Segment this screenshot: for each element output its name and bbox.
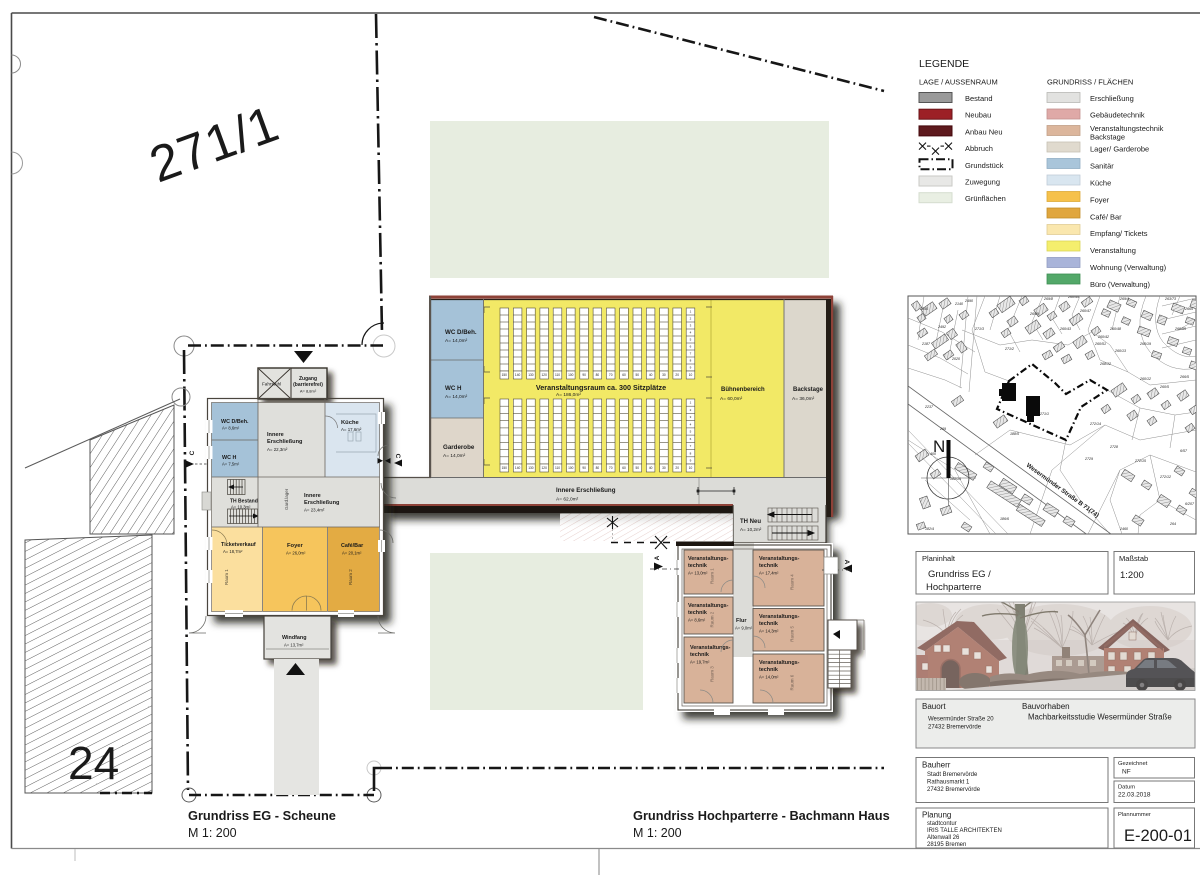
svg-text:10: 10 (689, 466, 693, 470)
svg-text:Raum 5: Raum 5 (790, 625, 795, 641)
svg-text:Flur: Flur (736, 618, 747, 624)
svg-text:A= 14,3m²: A= 14,3m² (759, 629, 779, 634)
svg-text:GRUNDRISS / FLÄCHEN: GRUNDRISS / FLÄCHEN (1047, 78, 1133, 87)
svg-text:Abbruch: Abbruch (965, 144, 993, 153)
svg-text:Planinhalt: Planinhalt (922, 554, 956, 563)
svg-text:260/19: 260/19 (1139, 342, 1151, 346)
svg-text:A= 13,0m²: A= 13,0m² (688, 571, 708, 576)
svg-text:80: 80 (596, 466, 600, 470)
svg-text:A= 8,6m²: A= 8,6m² (688, 618, 706, 623)
svg-text:Planung: Planung (922, 811, 951, 820)
svg-text:Innere: Innere (267, 432, 284, 438)
svg-text:70: 70 (609, 466, 613, 470)
svg-text:60: 60 (622, 373, 626, 377)
svg-text:A= 36,0m²: A= 36,0m² (792, 396, 815, 402)
svg-text:stadtcontur: stadtcontur (927, 821, 957, 827)
svg-text:Café/Bar: Café/Bar (341, 543, 364, 549)
svg-text:70: 70 (609, 373, 613, 377)
svg-text:260/51: 260/51 (1094, 342, 1106, 346)
svg-text:27432 Bremervörde: 27432 Bremervörde (928, 725, 982, 731)
svg-text:28195 Bremen: 28195 Bremen (927, 842, 966, 848)
svg-text:20: 20 (675, 466, 679, 470)
svg-text:A= 186,0m²: A= 186,0m² (556, 392, 581, 398)
svg-text:60: 60 (622, 466, 626, 470)
svg-text:110: 110 (555, 466, 560, 470)
svg-text:2492: 2492 (937, 325, 946, 329)
svg-text:A= 14,0m²: A= 14,0m² (445, 394, 468, 400)
svg-text:Raum 6: Raum 6 (790, 674, 795, 690)
svg-text:Neubau: Neubau (965, 111, 991, 120)
svg-text:LAGE / AUSSENRAUM: LAGE / AUSSENRAUM (919, 78, 998, 87)
svg-text:technik: technik (759, 621, 778, 627)
svg-text:M 1: 200: M 1: 200 (188, 826, 237, 840)
svg-text:Bühnenbereich: Bühnenbereich (721, 387, 765, 393)
svg-text:Foyer: Foyer (1090, 195, 1110, 204)
svg-text:C: C (394, 454, 401, 459)
svg-text:Foyer: Foyer (287, 543, 304, 549)
svg-text:260/55: 260/55 (1174, 327, 1186, 331)
svg-text:A= 20,1m²: A= 20,1m² (342, 551, 362, 556)
svg-text:technik: technik (688, 610, 707, 616)
svg-text:A= 8,8m²: A= 8,8m² (300, 389, 317, 394)
svg-text:260/12: 260/12 (1139, 377, 1151, 381)
svg-text:technik: technik (759, 563, 778, 569)
svg-text:A= 9,0m²: A= 9,0m² (735, 626, 753, 631)
svg-text:110: 110 (555, 373, 560, 377)
svg-text:2729: 2729 (1084, 457, 1093, 461)
svg-text:A: A (843, 560, 850, 565)
svg-text:Küche: Küche (341, 420, 359, 426)
svg-text:90: 90 (582, 373, 586, 377)
svg-text:260/47: 260/47 (1079, 309, 1092, 313)
svg-text:A= 17,6m²: A= 17,6m² (341, 427, 362, 432)
svg-text:Raum 3: Raum 3 (710, 666, 715, 682)
svg-text:Erschließung: Erschließung (267, 439, 303, 445)
svg-text:Backstage: Backstage (1090, 133, 1125, 142)
svg-text:Machbarkeitsstudie Wesermünder: Machbarkeitsstudie Wesermünder Straße (1028, 713, 1172, 722)
svg-text:Anbau Neu: Anbau Neu (965, 127, 1003, 136)
svg-text:10: 10 (689, 373, 693, 377)
svg-text:260/42: 260/42 (1097, 335, 1109, 339)
svg-text:50: 50 (636, 373, 640, 377)
svg-text:Gard.lager: Gard.lager (284, 488, 289, 510)
svg-text:(barrierefrei): (barrierefrei) (293, 382, 323, 388)
svg-text:6/57: 6/57 (1180, 449, 1188, 453)
svg-text:Veranstaltung: Veranstaltung (1090, 246, 1136, 255)
svg-text:Lager/ Garderobe: Lager/ Garderobe (1090, 145, 1149, 154)
svg-text:A= 13,7m²: A= 13,7m² (284, 643, 304, 648)
svg-text:50: 50 (636, 466, 640, 470)
svg-text:264: 264 (1169, 522, 1176, 526)
svg-text:1:200: 1:200 (1120, 570, 1144, 581)
svg-text:2460: 2460 (1119, 527, 1128, 531)
svg-text:140: 140 (515, 373, 521, 377)
svg-text:A= 14,0m²: A= 14,0m² (445, 338, 468, 344)
svg-text:Raum 1: Raum 1 (710, 568, 715, 584)
svg-text:Veranstaltungsraum ca. 300 Sit: Veranstaltungsraum ca. 300 Sitzplätze (536, 383, 666, 392)
svg-text:Empfang/ Tickets: Empfang/ Tickets (1090, 229, 1148, 238)
svg-text:Innere Erschließung: Innere Erschließung (556, 487, 616, 494)
svg-text:A: A (654, 555, 661, 560)
svg-text:Backstage: Backstage (793, 387, 824, 393)
svg-text:Veranstaltungs-: Veranstaltungs- (759, 614, 800, 620)
svg-text:40: 40 (649, 373, 653, 377)
svg-text:269/4: 269/4 (1119, 297, 1129, 301)
svg-text:A= 18,7m²: A= 18,7m² (223, 549, 243, 554)
svg-text:100: 100 (568, 373, 574, 377)
svg-text:A= 8,6m²: A= 8,6m² (222, 426, 240, 431)
svg-text:20: 20 (675, 373, 679, 377)
svg-text:120: 120 (542, 466, 548, 470)
svg-text:90: 90 (582, 466, 586, 470)
svg-text:130: 130 (528, 466, 534, 470)
svg-text:Veranstaltungs-: Veranstaltungs- (688, 556, 729, 562)
svg-text:Bauvorhaben: Bauvorhaben (1022, 702, 1070, 711)
svg-text:Grundriss Hochparterre - Bachm: Grundriss Hochparterre - Bachmann Haus (633, 808, 890, 823)
svg-text:Zuwegung: Zuwegung (965, 178, 1000, 187)
svg-text:6/207: 6/207 (1185, 502, 1195, 506)
svg-text:Stadt Bremervörde: Stadt Bremervörde (927, 772, 978, 778)
svg-text:Raum 1: Raum 1 (224, 569, 229, 585)
svg-text:Café/ Bar: Café/ Bar (1090, 212, 1122, 221)
svg-text:A= 7,5m²: A= 7,5m² (222, 462, 240, 467)
svg-text:A= 23,4m²: A= 23,4m² (304, 508, 325, 513)
svg-text:Gezeichnet: Gezeichnet (1118, 761, 1148, 767)
svg-text:Veranstaltungs-: Veranstaltungs- (759, 556, 800, 562)
svg-text:130: 130 (528, 373, 534, 377)
svg-text:Bauherr: Bauherr (922, 761, 951, 770)
svg-text:Sanitär: Sanitär (1090, 162, 1114, 171)
svg-text:27432 Bremervörde: 27432 Bremervörde (927, 787, 981, 793)
svg-text:Raum 2: Raum 2 (710, 611, 715, 627)
svg-text:2020: 2020 (951, 357, 960, 361)
svg-text:TH Neu: TH Neu (740, 519, 761, 525)
svg-text:A= 14,0m²: A= 14,0m² (759, 675, 779, 680)
svg-text:Altenwall 26: Altenwall 26 (927, 835, 960, 841)
svg-text:40: 40 (649, 466, 653, 470)
svg-text:2490: 2490 (964, 299, 973, 303)
svg-text:188/5: 188/5 (1010, 432, 1019, 436)
svg-text:2140: 2140 (954, 302, 963, 306)
svg-text:A= 22,3m²: A= 22,3m² (267, 447, 288, 452)
svg-text:Datum: Datum (1118, 785, 1135, 791)
svg-text:268/12: 268/12 (1099, 362, 1111, 366)
svg-text:A= 17,4m²: A= 17,4m² (759, 571, 779, 576)
svg-text:LEGENDE: LEGENDE (919, 58, 969, 70)
svg-text:150: 150 (502, 466, 508, 470)
svg-text:150: 150 (502, 373, 508, 377)
svg-text:Fahrstuhl: Fahrstuhl (262, 382, 281, 387)
svg-text:269/9: 269/9 (1029, 312, 1039, 316)
svg-text:technik: technik (688, 563, 707, 569)
svg-text:technik: technik (759, 667, 778, 673)
svg-text:272/15: 272/15 (1134, 459, 1146, 463)
svg-text:Wesermünder Straße 20: Wesermünder Straße 20 (928, 717, 994, 723)
svg-text:C: C (189, 450, 196, 455)
svg-text:WC H: WC H (222, 455, 236, 461)
svg-text:30: 30 (662, 466, 666, 470)
svg-text:WC D/Beh.: WC D/Beh. (221, 419, 249, 425)
svg-text:Grundriss EG - Scheune: Grundriss EG - Scheune (188, 808, 336, 823)
svg-text:A= 14,0m²: A= 14,0m² (443, 453, 466, 459)
svg-text:182/4: 182/4 (925, 527, 934, 531)
svg-text:Erschließung: Erschließung (1090, 94, 1134, 103)
svg-text:100: 100 (568, 466, 574, 470)
svg-text:186/6: 186/6 (1000, 517, 1009, 521)
svg-text:E-200-01: E-200-01 (1124, 827, 1192, 845)
svg-text:24: 24 (68, 737, 119, 789)
svg-text:Bauort: Bauort (922, 702, 946, 711)
svg-text:182/14: 182/14 (950, 477, 961, 481)
svg-text:Wohnung (Verwaltung): Wohnung (Verwaltung) (1090, 263, 1167, 272)
svg-text:Raum 2: Raum 2 (348, 569, 353, 585)
svg-text:Maßstab: Maßstab (1119, 554, 1148, 563)
svg-text:80: 80 (596, 373, 600, 377)
svg-text:Grünflächen: Grünflächen (965, 194, 1006, 203)
svg-text:Raum 4: Raum 4 (790, 574, 795, 590)
svg-text:A= 10,2m²: A= 10,2m² (740, 527, 762, 532)
svg-text:22.03.2018: 22.03.2018 (1118, 792, 1151, 799)
svg-text:Rathausmarkt 1: Rathausmarkt 1 (927, 780, 970, 786)
svg-text:2728: 2728 (1109, 445, 1118, 449)
svg-text:N: N (933, 437, 945, 456)
svg-text:2237: 2237 (924, 405, 934, 409)
svg-text:Gebäudetechnik: Gebäudetechnik (1090, 111, 1145, 120)
svg-text:Plannummer: Plannummer (1118, 812, 1151, 818)
svg-text:271/1: 271/1 (1039, 412, 1049, 416)
svg-text:260/48: 260/48 (1109, 327, 1121, 331)
svg-text:Bestand: Bestand (965, 94, 993, 103)
svg-text:IRIS TALLE ARCHITEKTEN: IRIS TALLE ARCHITEKTEN (927, 828, 1002, 834)
svg-text:272/14: 272/14 (1089, 422, 1101, 426)
svg-text:M 1: 200: M 1: 200 (633, 826, 682, 840)
svg-text:A= 60,0m²: A= 60,0m² (720, 396, 743, 402)
svg-text:269/8: 269/8 (1043, 297, 1053, 301)
svg-text:Veranstaltungs-: Veranstaltungs- (688, 603, 729, 609)
svg-text:30: 30 (662, 373, 666, 377)
svg-text:140: 140 (515, 466, 521, 470)
svg-text:266/5: 266/5 (1179, 375, 1189, 379)
svg-text:260/13: 260/13 (1114, 349, 1126, 353)
svg-text:technik: technik (690, 652, 709, 658)
svg-text:260/5: 260/5 (1159, 385, 1169, 389)
svg-text:Büro (Verwaltung): Büro (Verwaltung) (1090, 280, 1151, 289)
svg-text:Veranstaltungs-: Veranstaltungs- (759, 660, 800, 666)
svg-text:2145: 2145 (919, 307, 928, 311)
svg-text:A= 19,7m²: A= 19,7m² (690, 660, 710, 665)
svg-text:Erschließung: Erschließung (304, 500, 340, 506)
svg-text:Grundstück: Grundstück (965, 161, 1004, 170)
svg-text:NF: NF (1122, 769, 1131, 776)
svg-text:WC H: WC H (445, 385, 462, 392)
svg-text:A= 26,0m²: A= 26,0m² (286, 551, 306, 556)
svg-text:Hochparterre: Hochparterre (926, 582, 981, 593)
svg-text:WC D/Beh.: WC D/Beh. (445, 329, 477, 336)
svg-text:Veranstaltungs-: Veranstaltungs- (690, 645, 731, 651)
svg-text:A= 62,0m²: A= 62,0m² (556, 497, 579, 503)
svg-text:260/43: 260/43 (1059, 327, 1071, 331)
svg-text:271/2: 271/2 (1004, 347, 1014, 351)
svg-text:2187: 2187 (921, 342, 931, 346)
svg-text:Windfang: Windfang (282, 635, 307, 641)
svg-text:Küche: Küche (1090, 179, 1111, 188)
svg-text:Grundriss EG /: Grundriss EG / (928, 569, 991, 580)
svg-text:Innere: Innere (304, 493, 321, 499)
svg-text:271/3: 271/3 (974, 327, 984, 331)
svg-text:272/12: 272/12 (1159, 475, 1171, 479)
svg-text:Garderobe: Garderobe (443, 444, 475, 451)
svg-text:120: 120 (542, 373, 548, 377)
svg-text:Ticketverkauf: Ticketverkauf (221, 542, 256, 548)
svg-text:269: 269 (939, 427, 946, 431)
svg-text:263/73: 263/73 (1164, 297, 1176, 301)
svg-text:2665: 2665 (1184, 307, 1193, 311)
